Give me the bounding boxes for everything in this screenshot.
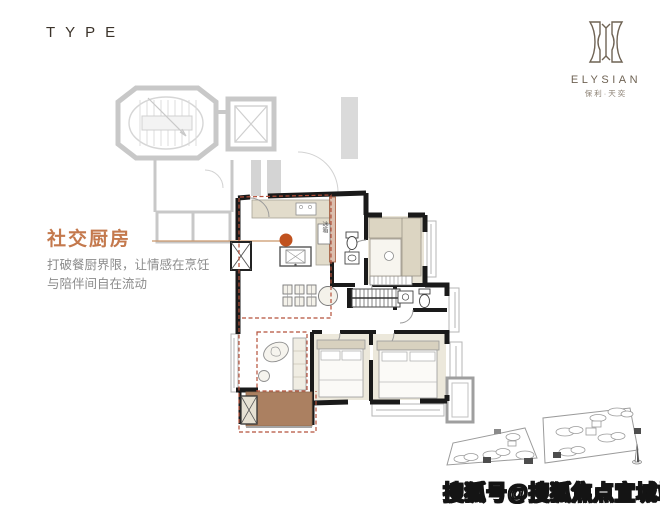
dining-table: [283, 285, 338, 306]
bedroom-2: [317, 340, 365, 397]
bathroom-2: [398, 289, 430, 308]
utility-shaft: [231, 242, 251, 270]
page-canvas: TYPE ELYSIAN 保利·天奕 社交厨房 打破餐厨界限，让情感在烹饪 与陪…: [0, 0, 660, 508]
brand-name-cn: 保利·天奕: [556, 88, 656, 99]
living-room: [259, 338, 307, 390]
fridge-label: 冰箱: [321, 220, 328, 234]
bathroom-1: [345, 232, 359, 264]
north-arrow-icon: [633, 444, 642, 464]
toilet: [420, 295, 430, 308]
lounge-chair: [260, 338, 291, 365]
page-title: TYPE: [46, 24, 125, 41]
toilet: [347, 237, 357, 250]
brand-name: ELYSIAN: [556, 74, 656, 86]
side-stool: [259, 371, 270, 382]
cooktop: [296, 203, 316, 215]
bedroom-1: [369, 218, 421, 276]
elysian-emblem-icon: [580, 14, 632, 70]
balcony-deck: [241, 392, 312, 427]
watermark: 搜狐号@搜狐焦点宜城站: [443, 477, 660, 507]
bathroom-sink: [398, 291, 413, 303]
bathroom-sink: [345, 252, 359, 264]
ghost-pillar: [341, 97, 358, 159]
floor-plan: 冰箱: [100, 75, 480, 465]
staircase: [352, 289, 400, 307]
bedroom-3: [377, 341, 439, 398]
kitchen-counter: [252, 200, 330, 218]
wardrobe: [370, 276, 412, 285]
kitchen-marker-dot: [280, 234, 293, 247]
round-table: [319, 287, 338, 306]
brand-logo: ELYSIAN 保利·天奕: [556, 14, 656, 99]
